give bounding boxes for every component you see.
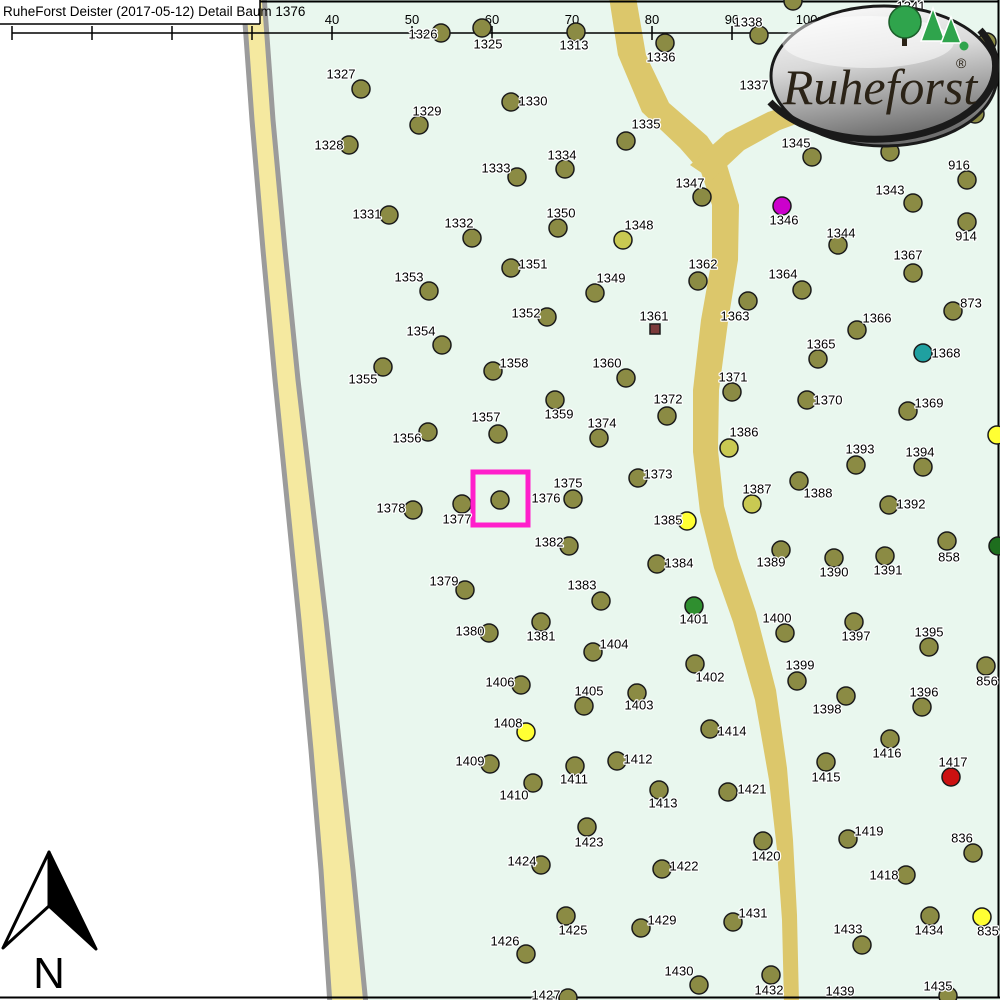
tree-label: 1369 [915, 396, 944, 411]
tree-label: 1435 [924, 979, 953, 994]
tree-label: 1400 [763, 611, 792, 626]
forest-map[interactable]: 0102030405060708090100m RuheForst Deiste… [0, 0, 1000, 1000]
tree-dot[interactable] [463, 229, 481, 247]
tree-label: 1381 [527, 629, 556, 644]
tree-label: 1419 [855, 824, 884, 839]
tree-label: 1353 [395, 270, 424, 285]
tree-dot[interactable] [614, 231, 632, 249]
tree-label: 1398 [813, 702, 842, 717]
tree-dot[interactable] [720, 439, 738, 457]
tree-label: 1331 [353, 207, 382, 222]
tree-label: 1372 [654, 392, 683, 407]
tree-dot[interactable] [433, 336, 451, 354]
tree-dot[interactable] [754, 832, 772, 850]
tree-label: 1393 [846, 442, 875, 457]
logo-registered-mark: ® [956, 55, 967, 71]
tree-dot[interactable] [538, 308, 556, 326]
tree-dot[interactable] [556, 160, 574, 178]
tree-label: 1397 [842, 629, 871, 644]
tree-label: 1362 [689, 257, 718, 272]
tree-dot[interactable] [977, 657, 995, 675]
tree-dot[interactable] [658, 407, 676, 425]
tree-label: 1357 [472, 410, 501, 425]
tree-label: 1373 [644, 467, 673, 482]
tree-label: 1411 [560, 772, 588, 787]
tree-label: 1366 [863, 311, 892, 326]
tree-label: 1418 [870, 868, 899, 883]
tree-label: 1406 [486, 675, 515, 690]
scale-tick-label: 40 [325, 12, 339, 27]
tree-dot[interactable] [653, 860, 671, 878]
tree-label: 1402 [696, 670, 725, 685]
tree-dot[interactable] [904, 264, 922, 282]
ruheforst-logo: Ruheforst ® [770, 6, 997, 146]
tree-label: 1363 [721, 309, 750, 324]
tree-label: 1349 [597, 271, 626, 286]
tree-label: 1352 [512, 306, 541, 321]
tree-label: 1415 [812, 770, 841, 785]
tree-label: 1347 [676, 176, 705, 191]
tree-label: 1354 [407, 324, 436, 339]
tree-dot[interactable] [904, 194, 922, 212]
tree-dot[interactable] [564, 490, 582, 508]
tree-label: 1368 [932, 346, 961, 361]
scale-tick-label: 50 [405, 12, 419, 27]
tree-label: 1344 [827, 226, 856, 241]
tree-label: 1327 [327, 67, 356, 82]
tree-label: 1384 [665, 556, 694, 571]
tree-dot[interactable] [404, 501, 422, 519]
tree-dot[interactable] [762, 966, 780, 984]
tree-dot[interactable] [508, 168, 526, 186]
tree-label: 1399 [786, 658, 815, 673]
tree-label: 1328 [315, 138, 344, 153]
tree-label: 1439 [826, 984, 855, 999]
tree-dot[interactable] [586, 284, 604, 302]
tree-label: 1395 [915, 625, 944, 640]
tree-label: 1425 [559, 923, 588, 938]
tree-label: 1394 [906, 445, 935, 460]
tree-label: 1434 [915, 923, 944, 938]
tree-dot[interactable] [847, 456, 865, 474]
tree-label: 1427 [532, 988, 561, 1000]
tree-label: 1422 [670, 859, 699, 874]
tree-label: 836 [951, 831, 973, 846]
tree-dot[interactable] [559, 989, 577, 1000]
title-bar: RuheForst Deister (2017-05-12) Detail Ba… [0, 0, 305, 24]
tree-dot[interactable] [352, 80, 370, 98]
tree-label: 1367 [894, 248, 923, 263]
tree-label: 1387 [743, 482, 772, 497]
tree-label: 1356 [393, 431, 422, 446]
tree-label: 1350 [547, 206, 576, 221]
tree-label: 1375 [554, 476, 583, 491]
tree-label: 856 [976, 674, 998, 689]
tree-label: 1359 [545, 407, 574, 422]
tree-label: 1371 [719, 370, 748, 385]
tree-label: 1388 [804, 486, 833, 501]
tree-label: 1325 [474, 37, 503, 52]
tree-dot[interactable] [473, 19, 491, 37]
tree-label: 914 [955, 229, 977, 244]
tree-label: 1335 [632, 117, 661, 132]
tree-dot[interactable] [453, 495, 471, 513]
tree-dot[interactable] [723, 383, 741, 401]
tree-dot[interactable] [590, 429, 608, 447]
tree-label: 1351 [519, 257, 548, 272]
tree-dot[interactable] [456, 581, 474, 599]
tree-label: 1405 [575, 684, 604, 699]
tree-label: 1385 [654, 513, 683, 528]
tree-label: 1326 [409, 27, 438, 42]
tree-label: 1361 [640, 309, 669, 324]
tree-label: 1358 [500, 356, 529, 371]
tree-dot[interactable] [502, 93, 520, 111]
tree-label: 1336 [647, 50, 676, 65]
tree-label: 916 [948, 158, 970, 173]
tree-dot[interactable] [575, 697, 593, 715]
tree-dot[interactable] [502, 259, 520, 277]
tree-dot[interactable] [989, 537, 1000, 555]
scale-tick-label: 80 [645, 12, 659, 27]
tree-dot[interactable] [964, 844, 982, 862]
tree-label: 1430 [665, 964, 694, 979]
tree-label: 1360 [593, 356, 622, 371]
tree-label: 1355 [349, 372, 378, 387]
tree-label: 1346 [770, 213, 799, 228]
tree-label: 1370 [814, 393, 843, 408]
tree-label: 1433 [834, 922, 863, 937]
tree-dot[interactable] [942, 768, 960, 786]
tree-dot[interactable] [817, 753, 835, 771]
tree-label: 1429 [648, 913, 677, 928]
tree-dot[interactable] [988, 426, 1000, 444]
tree-label: 1432 [755, 983, 784, 998]
tree-dot[interactable] [776, 624, 794, 642]
tree-dot[interactable] [793, 281, 811, 299]
tree-label: 1332 [445, 216, 474, 231]
tree-label: 1431 [739, 906, 768, 921]
tree-marker-square[interactable] [650, 324, 660, 334]
tree-dot[interactable] [410, 116, 428, 134]
north-label: N [33, 949, 65, 998]
tree-label: 1421 [738, 782, 767, 797]
tree-label: 1403 [625, 698, 654, 713]
tree-label: 1338 [734, 15, 763, 30]
tree-label: 1409 [456, 754, 485, 769]
tree-dot[interactable] [617, 369, 635, 387]
tree-label: 1396 [910, 685, 939, 700]
tree-dot[interactable] [648, 555, 666, 573]
tree-label: 1389 [757, 555, 786, 570]
tree-dot[interactable] [489, 425, 507, 443]
tree-dot[interactable] [739, 292, 757, 310]
tree-dot[interactable] [420, 282, 438, 300]
tree-label: 1420 [752, 849, 781, 864]
tree-label: 1337 [740, 78, 769, 93]
tree-label: 1392 [897, 497, 926, 512]
tree-dot[interactable] [803, 148, 821, 166]
tree-label: 1426 [491, 934, 520, 949]
tree-dot[interactable] [958, 171, 976, 189]
tree-label: 1417 [939, 755, 968, 770]
tree-dot[interactable] [690, 976, 708, 994]
tree-label: 1423 [575, 835, 604, 850]
tree-dot[interactable] [914, 344, 932, 362]
tree-label: 1378 [377, 501, 406, 516]
tree-dot[interactable] [419, 423, 437, 441]
tree-label: 1413 [649, 796, 678, 811]
tree-label: 1329 [413, 104, 442, 119]
tree-dot[interactable] [701, 720, 719, 738]
tree-dot[interactable] [693, 188, 711, 206]
tree-label: 1330 [519, 94, 548, 109]
tree-dot[interactable] [920, 638, 938, 656]
tree-label: 873 [960, 296, 982, 311]
tree-label: 1365 [807, 337, 836, 352]
tree-label: 1386 [730, 425, 759, 440]
tree-dot[interactable] [380, 206, 398, 224]
tree-label: 1345 [782, 136, 811, 151]
tree-label: 1380 [456, 624, 485, 639]
tree-label: 1414 [718, 724, 747, 739]
tree-label: 1334 [548, 148, 577, 163]
tree-dot[interactable] [743, 495, 761, 513]
tree-dot[interactable] [938, 532, 956, 550]
tree-label: 1424 [508, 854, 537, 869]
tree-label: 858 [938, 550, 960, 565]
tree-dot[interactable] [897, 866, 915, 884]
tree-label: 1364 [769, 267, 798, 282]
tree-dot[interactable] [592, 592, 610, 610]
tree-dot[interactable] [491, 491, 509, 509]
tree-label: 1382 [535, 535, 564, 550]
tree-dot[interactable] [578, 818, 596, 836]
page-title: RuheForst Deister (2017-05-12) Detail Ba… [3, 4, 305, 19]
tree-label: 1390 [820, 565, 849, 580]
logo-brand-text: Ruheforst [782, 59, 979, 115]
map-stage: 0102030405060708090100m RuheForst Deiste… [0, 0, 1000, 1000]
tree-label: 1383 [568, 578, 597, 593]
tree-label: 1333 [482, 161, 511, 176]
tree-label: 1313 [560, 38, 589, 53]
tree-label: 1416 [873, 746, 902, 761]
tree-dot[interactable] [689, 272, 707, 290]
tree-label: 1410 [500, 788, 529, 803]
tree-label: 1412 [624, 752, 653, 767]
tree-dot[interactable] [914, 458, 932, 476]
tree-label: 1404 [600, 637, 629, 652]
tree-dot[interactable] [853, 936, 871, 954]
tree-dot[interactable] [617, 132, 635, 150]
tree-label: 1376 [532, 491, 561, 506]
tree-label: 1377 [443, 512, 472, 527]
tree-label: 1374 [588, 416, 617, 431]
tree-dot[interactable] [809, 350, 827, 368]
tree-label: 1343 [876, 183, 905, 198]
tree-dot[interactable] [788, 672, 806, 690]
tree-label: 835 [977, 924, 999, 939]
tree-label: 1391 [874, 563, 903, 578]
tree-dot[interactable] [719, 783, 737, 801]
tree-label: 1408 [494, 716, 523, 731]
tree-dot[interactable] [549, 219, 567, 237]
tree-dot[interactable] [880, 496, 898, 514]
tree-dot[interactable] [517, 945, 535, 963]
tree-label: 1348 [625, 218, 654, 233]
tree-dot[interactable] [512, 676, 530, 694]
tree-dot[interactable] [913, 698, 931, 716]
tree-label: 1379 [430, 574, 459, 589]
tree-label: 1401 [680, 612, 709, 627]
